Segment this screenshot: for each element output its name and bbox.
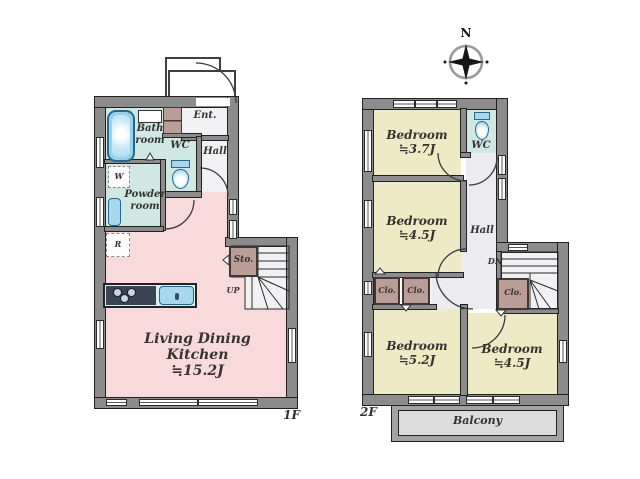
wall — [105, 227, 163, 231]
room-label-line: ≒4.5J — [494, 356, 531, 370]
room-label-wc-2f: WC — [464, 140, 498, 152]
room-label-bedroom-4-5-mid: Bedroom ≒4.5J — [377, 214, 457, 242]
stairs-direction-up: UP — [220, 286, 246, 295]
window — [96, 320, 104, 349]
window — [364, 281, 372, 295]
window — [229, 220, 237, 239]
window — [559, 340, 567, 363]
compass-north-label: N — [457, 26, 475, 40]
room-label-storage: Sto. — [229, 255, 258, 266]
window-mullion — [414, 100, 416, 108]
window — [364, 130, 372, 172]
room-hall-2f — [466, 153, 497, 252]
fridge-label: R — [106, 240, 130, 249]
wall — [287, 238, 297, 408]
room-label-line: Living Dining — [144, 331, 250, 347]
window — [393, 100, 457, 108]
room-label-line: ≒15.2J — [171, 363, 223, 379]
floor-label-1f: 1F — [270, 408, 300, 422]
wall — [461, 153, 470, 157]
room-label-line: Powder — [124, 189, 165, 200]
balcony-label: Balcony — [398, 415, 557, 428]
window — [508, 244, 528, 251]
window-mullion — [492, 396, 494, 404]
room-label-powder: Powder room — [113, 189, 177, 213]
window-mullion — [433, 396, 435, 404]
kitchen-sink — [159, 286, 194, 305]
window — [96, 137, 104, 168]
window — [498, 155, 506, 175]
window-mullion — [436, 100, 438, 108]
wall — [373, 176, 463, 181]
room-label-wc-1f: WC — [162, 140, 198, 152]
room-label-line: Bath — [137, 123, 164, 134]
floor-label-2f: 2F — [360, 405, 386, 419]
closet-label: Clo. — [497, 288, 529, 297]
room-label-line: Bedroom — [386, 128, 447, 142]
wall — [461, 309, 467, 395]
room-label-hall-1f: Hall — [198, 146, 232, 158]
floorplan-canvas: Bath room Powder room WC Ent. Hall Sto. … — [0, 0, 640, 479]
window — [364, 200, 372, 228]
room-label-line: Kitchen — [167, 347, 229, 363]
room-hall-2f — [431, 273, 461, 309]
stove-burner — [120, 294, 129, 303]
room-label-line: ≒5.2J — [399, 353, 436, 367]
room-label-hall-2f: Hall — [462, 225, 502, 237]
room-label-bedroom-3-7: Bedroom ≒3.7J — [377, 128, 457, 156]
room-label-line: Bedroom — [481, 342, 542, 356]
window — [106, 399, 127, 406]
compass-star — [448, 44, 484, 80]
window-mullion — [197, 399, 199, 406]
stairs-direction-down: DN — [483, 257, 507, 266]
washer-label: W — [108, 172, 130, 181]
window — [364, 332, 372, 357]
window — [96, 197, 104, 227]
bath-counter — [138, 110, 162, 123]
room-label-line: Bedroom — [386, 214, 447, 228]
closet-label: Clo. — [402, 286, 430, 295]
window — [288, 328, 296, 363]
window — [229, 199, 237, 215]
closet-label: Clo. — [374, 286, 400, 295]
room-label-line: ≒3.7J — [399, 142, 436, 156]
wall — [461, 181, 466, 251]
stove — [106, 286, 156, 305]
toilet — [171, 160, 190, 168]
room-label-bedroom-5-2: Bedroom ≒5.2J — [377, 339, 457, 367]
window — [498, 178, 506, 200]
room-label-bedroom-4-5-br: Bedroom ≒4.5J — [472, 342, 552, 370]
room-label-line: room — [130, 201, 159, 212]
wall — [558, 243, 568, 405]
toilet — [474, 112, 490, 120]
compass — [444, 44, 489, 85]
room-label-line: Bedroom — [386, 339, 447, 353]
faucet — [175, 293, 179, 300]
room-label-line: room — [135, 135, 164, 146]
room-label-line: ≒4.5J — [399, 228, 436, 242]
wall — [373, 305, 436, 309]
front-door-opening — [196, 98, 230, 106]
room-label-ldk: Living Dining Kitchen ≒15.2J — [120, 331, 275, 379]
staircase-area-1f — [245, 277, 289, 309]
room-label-entrance: Ent. — [182, 110, 228, 122]
